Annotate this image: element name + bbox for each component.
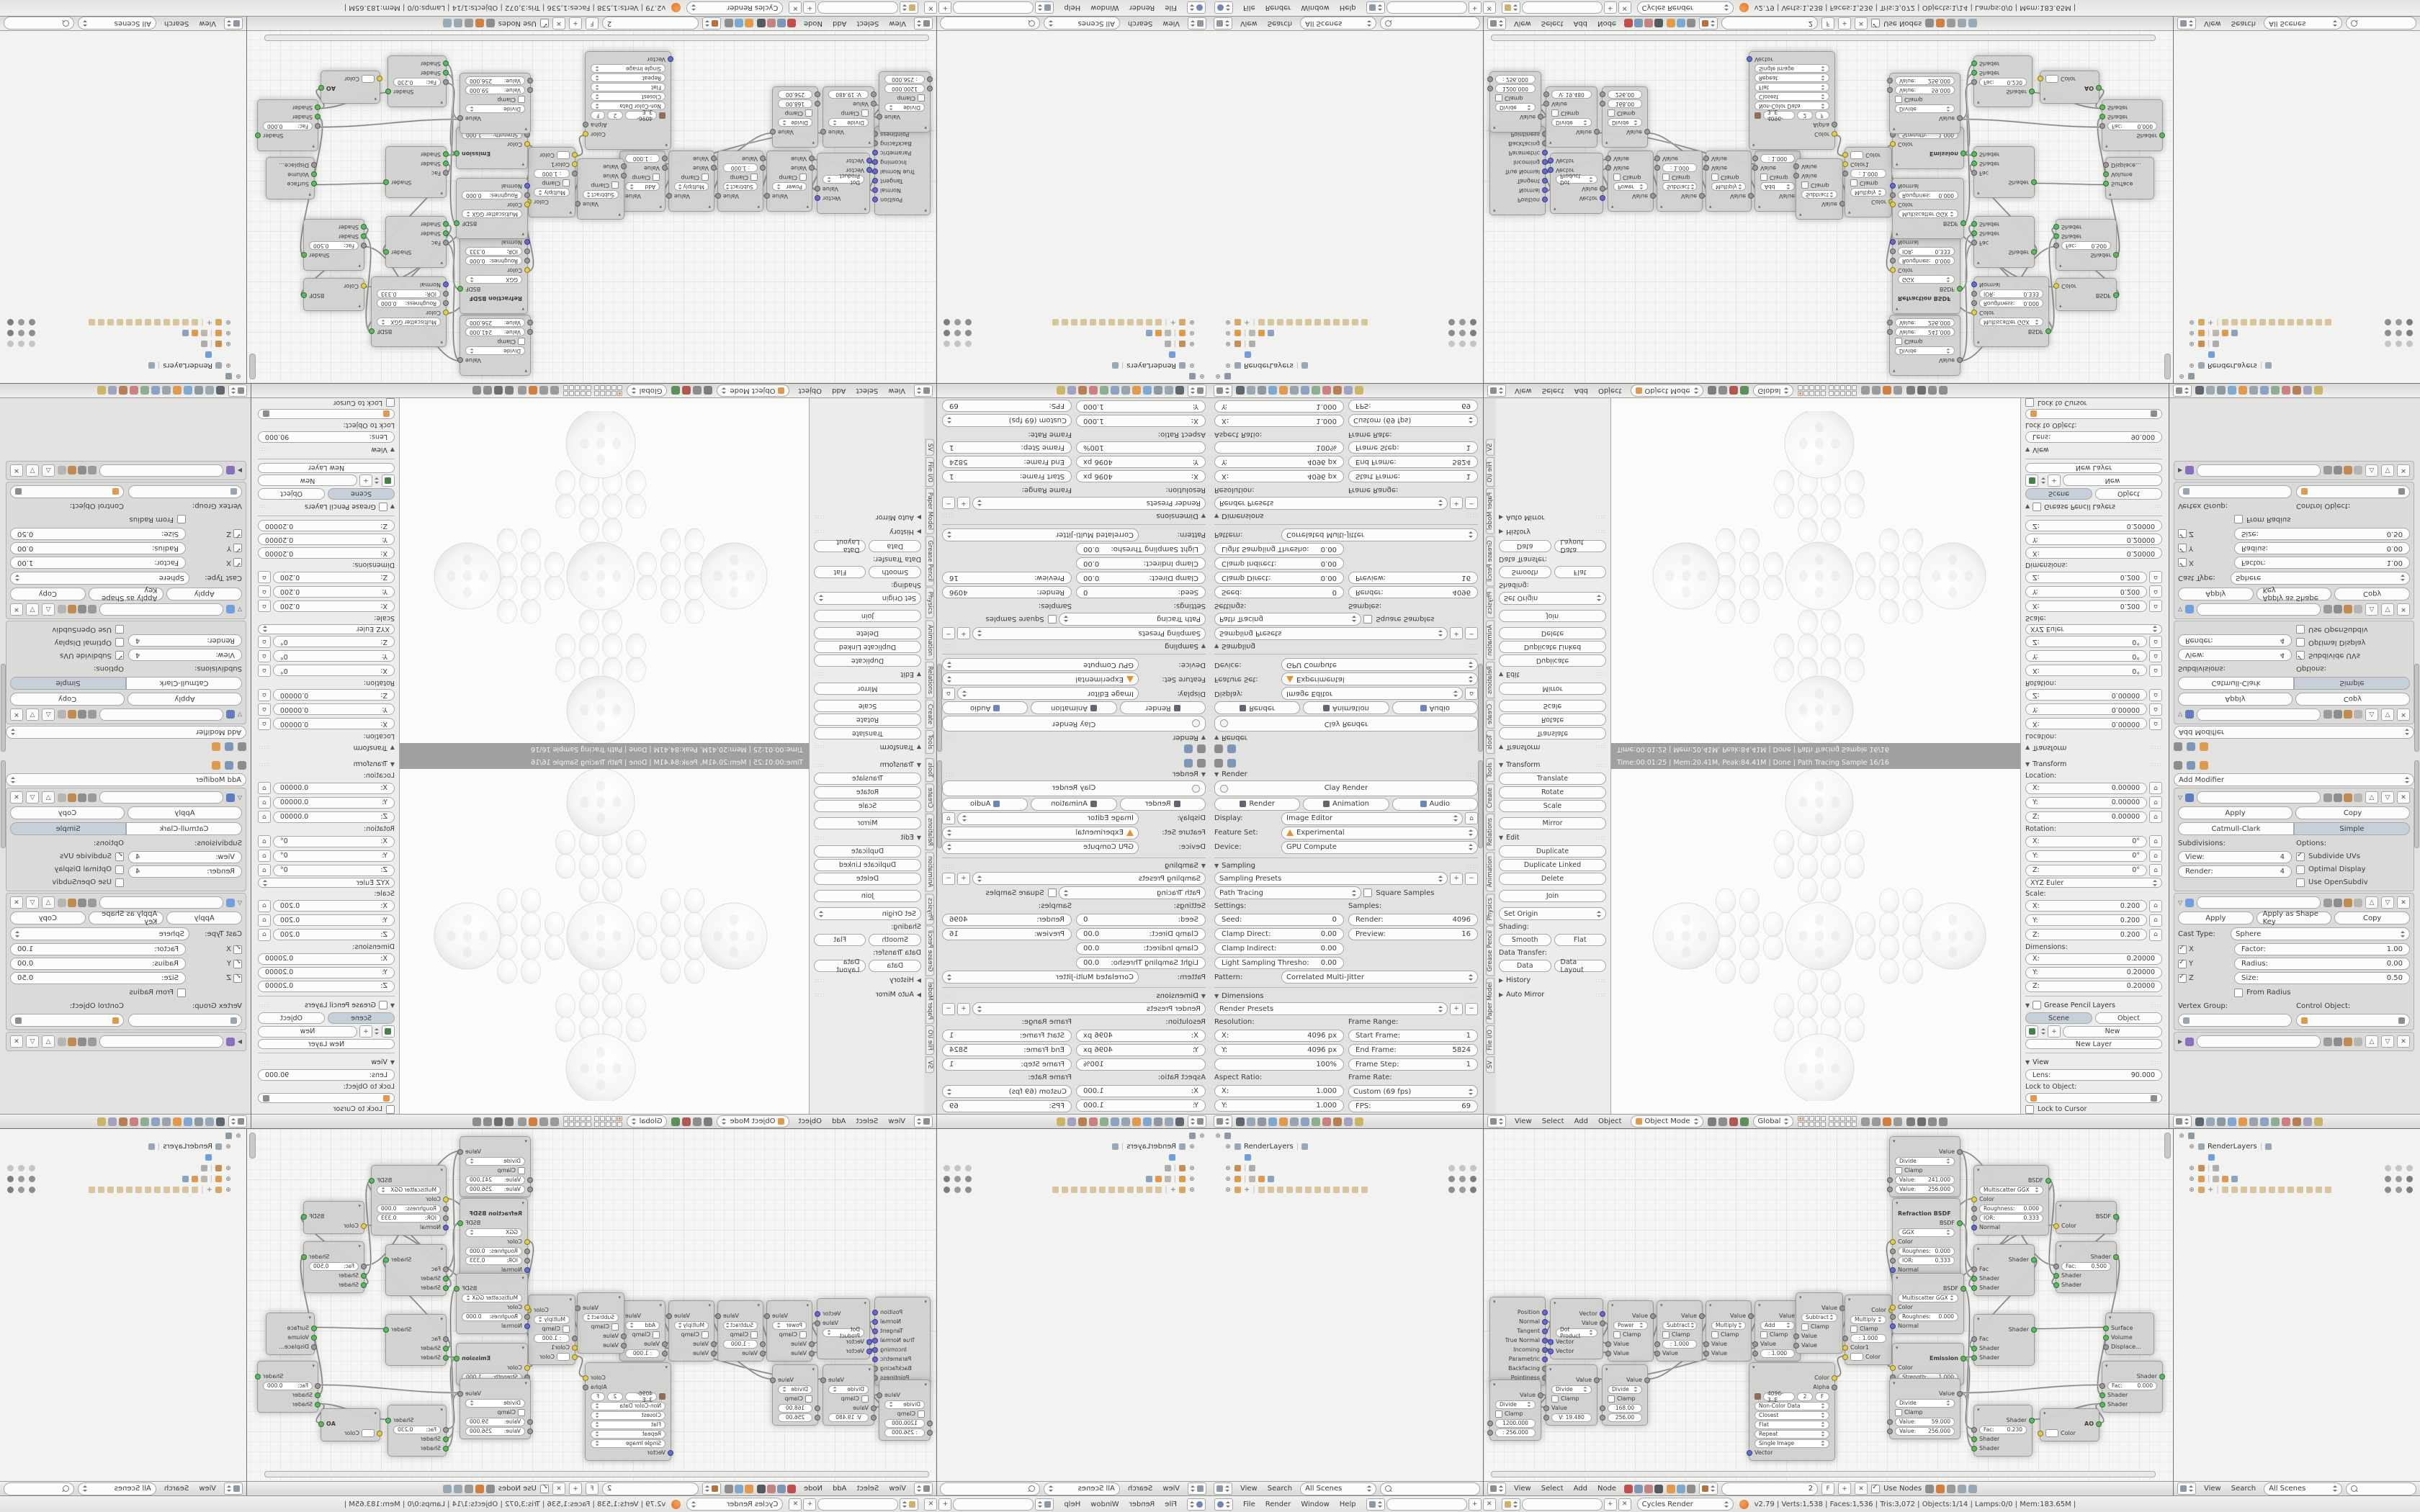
outliner-row[interactable]: ⊕| (938, 328, 1209, 338)
node-refr[interactable]: ▾Refraction BSDFBSDFGGXColorRoughnes:0.0… (1892, 1198, 1960, 1278)
node-socket[interactable] (318, 1421, 324, 1427)
mod-cage-icon[interactable] (58, 899, 66, 907)
node-socket[interactable] (2103, 181, 2109, 187)
copy-button[interactable]: Copy (2295, 693, 2410, 706)
mod-eye-icon[interactable] (78, 711, 86, 719)
node-dropdown[interactable]: Divide (884, 104, 925, 112)
node-socket[interactable] (770, 130, 776, 135)
object-data-icon[interactable] (1100, 387, 1108, 395)
node-value-field[interactable]: Value:256.000 (465, 1185, 525, 1194)
node-dropdown[interactable]: Divide (828, 1385, 869, 1394)
render-engine-dropdown[interactable]: Cycles Render (1637, 1498, 1734, 1511)
node-dropdown[interactable]: Multiply (674, 1321, 709, 1330)
layer-toggle[interactable] (1815, 385, 1820, 390)
lock-to-cursor-checkbox[interactable]: Lock to Cursor (258, 1104, 395, 1114)
scene-icon[interactable] (2217, 387, 2226, 395)
collapse-icon[interactable]: ▶ (238, 467, 242, 474)
add-icon[interactable]: + (2048, 474, 2061, 487)
delete-modifier-button[interactable]: ✕ (2397, 791, 2410, 804)
node-socket[interactable] (527, 1177, 533, 1183)
frame-rate-dropdown[interactable]: Custom (69 fps) (942, 1085, 1072, 1098)
layer-toggle[interactable] (563, 385, 568, 390)
lock-icon[interactable]: ⌂ (2149, 864, 2162, 876)
layer-toggle[interactable] (1803, 1116, 1809, 1121)
clay-render-button[interactable]: Clay Render (1214, 716, 1478, 732)
scene-lock-icon[interactable] (1861, 1117, 1870, 1126)
mod-editmode-icon[interactable] (68, 1038, 76, 1046)
frame-rate-dropdown[interactable]: Custom (69 fps) (1348, 1085, 1478, 1098)
optimal-display-checkbox[interactable]: Optimal Display (2296, 637, 2410, 648)
eye-off-toggle-icon[interactable] (29, 1165, 35, 1171)
node-socket[interactable] (1890, 1323, 1896, 1329)
node-dropdown[interactable]: Subtract (723, 1321, 758, 1330)
node-value-field[interactable]: : 256.000 (1495, 1428, 1536, 1437)
outliner-row[interactable]: ⊕RenderLayers| (2175, 360, 2419, 371)
sampling-presets-dropdown[interactable]: Sampling Presets (1214, 627, 1448, 640)
square-samples-checkbox[interactable]: Square Samples (942, 613, 1057, 624)
layer-toggle[interactable] (1821, 385, 1826, 390)
shelf-tab-create[interactable]: Create (926, 783, 935, 812)
from-radius-checkbox[interactable]: From Radius (10, 987, 186, 998)
number-field[interactable]: View:4 (128, 851, 242, 863)
collapse-icon[interactable]: ▽ (2178, 711, 2182, 718)
cursor-off-toggle-icon[interactable] (1459, 1165, 1466, 1171)
scrollbar[interactable] (1, 664, 6, 752)
node-socket[interactable] (1971, 222, 1977, 228)
node-socket[interactable] (711, 156, 717, 162)
snap-magnet-icon[interactable] (475, 19, 484, 28)
node-socket[interactable] (815, 102, 820, 107)
node-socket[interactable] (815, 1320, 820, 1326)
object-icon[interactable] (173, 387, 181, 395)
node-dropdown[interactable]: Add (625, 183, 660, 192)
node-dropdown[interactable]: Multiply (1711, 183, 1746, 192)
node-value-field[interactable]: Value:256.000 (1895, 319, 1955, 328)
node-diff[interactable]: ▾BSDFColor (2056, 1201, 2117, 1234)
add-scene-button[interactable]: + (803, 2, 816, 14)
node-socket[interactable] (1890, 1258, 1896, 1264)
menu-view[interactable]: View (1514, 19, 1531, 27)
number-field[interactable]: X:0° (273, 836, 395, 847)
node-socket[interactable] (1960, 1286, 1966, 1292)
cursor-off-toggle-icon[interactable] (954, 1165, 961, 1171)
layer-toggle[interactable] (581, 1122, 586, 1127)
axis-y-checkbox[interactable] (2178, 544, 2187, 553)
catmull-clark-button[interactable]: Catmull-Clark (2178, 677, 2294, 690)
lock-icon[interactable]: ⌂ (258, 718, 271, 730)
modifiers-icon[interactable] (2260, 1117, 2269, 1126)
user-count[interactable]: 2 (1797, 1392, 1813, 1401)
node-socket[interactable] (385, 1418, 391, 1423)
node-socket[interactable] (820, 1377, 826, 1383)
clamp-checkbox[interactable] (1895, 1409, 1902, 1416)
data-layout-button[interactable]: Data Layout (1554, 540, 1607, 552)
clamp-checkbox[interactable] (750, 1331, 758, 1338)
shelf-tab-physics[interactable]: Physics (926, 588, 935, 618)
outliner-row[interactable]: ⊕+| (1211, 1184, 1482, 1195)
layer-toggle[interactable] (586, 391, 591, 396)
apply-button[interactable]: Apply (127, 693, 242, 706)
outliner-row[interactable]: ⊕| (938, 1174, 1209, 1184)
node-mixD[interactable]: ▾ShaderFac:0.230ShaderShader (387, 55, 447, 107)
subdivide-uvs-checkbox[interactable]: Subdivide UVs (2296, 851, 2410, 862)
quad-view-icon[interactable] (472, 387, 481, 395)
node-socket[interactable] (1890, 1239, 1896, 1245)
number-field[interactable]: View:4 (128, 649, 242, 661)
shader-nodes-icon[interactable] (787, 1485, 796, 1493)
object-icon[interactable] (2200, 742, 2208, 751)
node-socket[interactable] (1971, 1446, 1977, 1452)
lock-icon[interactable]: ⌂ (258, 914, 271, 927)
node-socket[interactable] (1890, 142, 1896, 148)
menu-add[interactable]: Add (833, 19, 846, 27)
pencil-icon[interactable] (382, 1025, 395, 1038)
frame-rate-dropdown[interactable]: Custom (69 fps) (942, 414, 1072, 427)
display-dropdown[interactable]: Image Editor (1281, 812, 1463, 825)
layer-toggle[interactable] (1798, 1122, 1803, 1127)
node-imgtex[interactable]: ▾ColorAlpha4096-3..E2FNon-Color DataClos… (585, 51, 671, 150)
camera-toggle-icon[interactable] (1470, 1187, 1476, 1193)
remove-preset-button[interactable]: − (1465, 873, 1478, 885)
lock-icon[interactable]: ⌂ (2149, 703, 2162, 716)
context-object-icon[interactable] (745, 1485, 753, 1493)
viewport-shading-icon[interactable] (1708, 387, 1716, 395)
node-socket[interactable] (311, 1335, 317, 1341)
node-socket[interactable] (457, 358, 463, 364)
clamp-checkbox[interactable] (1850, 180, 1857, 187)
add-preset-button[interactable]: + (1450, 1003, 1463, 1015)
gp-checkbox[interactable] (379, 503, 387, 511)
duplicate-button[interactable]: Duplicate (1499, 654, 1606, 667)
camera-toggle-icon[interactable] (7, 1176, 14, 1182)
node-socket[interactable] (1594, 1377, 1600, 1383)
node-value-field[interactable]: Roughnes:0.000 (1898, 1247, 1955, 1256)
number-field[interactable]: Clamp Direct:0.00 (1076, 928, 1206, 940)
node-socket[interactable] (1842, 171, 1848, 177)
node-value-field[interactable]: : 1.000 (1662, 164, 1697, 173)
layer-toggle[interactable] (1840, 391, 1845, 396)
scrollbar[interactable] (937, 760, 942, 848)
shelf-edit-title[interactable]: ▼Edit:::: (1499, 831, 1606, 844)
node-add[interactable]: ▾ValueAddClampValue: 1.000 (619, 1300, 665, 1362)
node-socket[interactable] (443, 61, 449, 67)
layer-toggle[interactable] (600, 385, 605, 390)
shader-nodes-icon[interactable] (1624, 1485, 1633, 1493)
node-socket[interactable] (760, 1341, 766, 1347)
node-socket[interactable] (385, 89, 391, 95)
simple-button[interactable]: Simple (2294, 822, 2410, 835)
manipulator-icon[interactable] (1729, 387, 1738, 395)
mode-dropdown[interactable]: Object Mode (1631, 1115, 1703, 1128)
shelf-tab-sv[interactable]: SV (1486, 439, 1494, 456)
node-socket[interactable] (662, 1341, 668, 1347)
vertical-scrollbar[interactable] (2164, 1133, 2171, 1158)
node-socket[interactable] (1890, 184, 1896, 189)
data-layout-button[interactable]: Data Layout (1554, 960, 1607, 972)
scene-lock-icon[interactable] (550, 1117, 559, 1126)
copy-button[interactable]: Copy (10, 588, 86, 600)
apply-button[interactable]: Apply (166, 912, 242, 924)
subdivide-uvs-checkbox[interactable]: Subdivide UVs (2296, 650, 2410, 661)
data-button[interactable]: Data (869, 960, 922, 972)
scale-button[interactable]: Scale (1499, 700, 1606, 712)
flat-button[interactable]: Flat (814, 934, 866, 946)
node-dropdown[interactable]: Divide (1895, 105, 1955, 114)
object-data-icon[interactable] (2271, 387, 2280, 395)
node-socket[interactable] (311, 181, 317, 187)
camera-off-toggle-icon[interactable] (7, 1165, 14, 1171)
eye-toggle-icon[interactable] (29, 1187, 35, 1193)
node-socket[interactable] (1832, 132, 1837, 138)
node-dropdown[interactable]: Power (772, 1321, 807, 1330)
mod-eye-icon[interactable] (2334, 793, 2342, 802)
number-field[interactable]: Y:4096 px (1214, 1044, 1344, 1056)
layers-widget[interactable] (1798, 385, 1857, 396)
node-socket[interactable] (1890, 240, 1896, 246)
menu-file[interactable]: File (1243, 4, 1255, 12)
clamp-checkbox[interactable] (1760, 174, 1767, 181)
node-socket[interactable] (443, 301, 449, 307)
fake-user-button[interactable]: F (1815, 1392, 1829, 1401)
clamp-checkbox[interactable] (1711, 1331, 1718, 1338)
node-socket[interactable] (2053, 1282, 2059, 1288)
node-socket[interactable] (1548, 1349, 1554, 1354)
node-socket[interactable] (666, 1313, 672, 1319)
layers-widget[interactable] (1798, 1116, 1857, 1127)
outliner-scope-dropdown[interactable]: All Scenes (1044, 1482, 1120, 1495)
layer-toggle[interactable] (1809, 391, 1814, 396)
node-socket[interactable] (301, 1254, 307, 1260)
layer-toggle[interactable] (1834, 391, 1839, 396)
screen-name-field[interactable] (1386, 2, 1467, 14)
node-socket[interactable] (1542, 1356, 1548, 1362)
node-socket[interactable] (583, 132, 588, 138)
add-preset-button[interactable]: + (957, 498, 970, 510)
node-mixrgb[interactable]: ▾ColorMultiplyClamp: 1.000Color1Color (1845, 147, 1892, 217)
use-nodes-checkbox[interactable]: Use Nodes (1871, 18, 1922, 29)
scene-selector-icon[interactable] (900, 2, 918, 14)
layer-toggle[interactable] (575, 391, 580, 396)
axis-y-checkbox[interactable] (233, 544, 242, 553)
outliner-row[interactable]: ⊕RenderLayers| (1, 1141, 245, 1152)
node-socket[interactable] (443, 1436, 449, 1442)
outliner-search-field[interactable] (940, 1482, 1040, 1495)
eye-toggle-icon[interactable] (1448, 1187, 1455, 1193)
clamp-checkbox[interactable] (518, 1409, 525, 1416)
lock-icon[interactable]: ⌂ (258, 571, 271, 583)
move-up-button[interactable]: △ (2365, 1035, 2378, 1048)
number-field[interactable]: Lens:90.000 (258, 431, 395, 443)
node-socket[interactable] (457, 116, 463, 122)
render-layers-icon[interactable] (443, 19, 452, 28)
node-socket[interactable] (524, 258, 530, 264)
shelf-automirror-title[interactable]: ▶Auto Mirror:::: (814, 511, 921, 524)
node-socket[interactable] (1600, 196, 1605, 202)
outliner-row[interactable]: ⊕| (1211, 328, 1482, 338)
outliner-scope-dropdown[interactable]: All Scenes (78, 17, 156, 30)
layer-toggle[interactable] (1840, 1116, 1845, 1121)
node-socket[interactable] (871, 1415, 877, 1421)
node-value-field[interactable]: : 1.000 (534, 170, 570, 179)
clamp-checkbox[interactable] (799, 1331, 807, 1338)
node-geo[interactable]: ▾PositionNormalTangentTrue NormalIncomin… (1489, 126, 1546, 215)
clamp-checkbox[interactable] (799, 174, 807, 181)
subdivide-uvs-checkbox[interactable]: Subdivide UVs (10, 851, 124, 862)
delete-modifier-button[interactable]: ✕ (10, 708, 23, 721)
mod-render-icon[interactable] (88, 606, 97, 614)
scrollbar[interactable] (1478, 760, 1483, 848)
particles-icon[interactable] (108, 1117, 117, 1126)
node-socket[interactable] (318, 86, 324, 91)
node-socket[interactable] (443, 231, 449, 237)
number-field[interactable]: FPS:69 (1348, 400, 1478, 412)
node-socket[interactable] (1793, 164, 1799, 170)
node-socket[interactable] (524, 240, 530, 246)
clamp-checkbox[interactable] (702, 1331, 709, 1338)
new-material-button[interactable]: + (569, 1482, 582, 1495)
number-field[interactable]: Z:0.20000 (2025, 981, 2162, 992)
axis-y-checkbox[interactable] (2178, 960, 2187, 968)
number-field[interactable]: Preview:16 (1348, 572, 1478, 584)
node-glossy[interactable]: ▾BSDFMultiscatter GGXColorRoughnes:0.000… (1892, 178, 1964, 239)
outliner-row[interactable]: ⊕+| (1, 317, 245, 328)
data-button[interactable]: Data (869, 540, 922, 552)
np-gp-title[interactable]: ▼Grease Pencil Layers:::: (258, 501, 395, 512)
node-mixE[interactable]: ▾ShaderFac:0.000ShaderShader (2102, 1361, 2163, 1413)
mode-dropdown[interactable]: Object Mode (717, 384, 789, 397)
number-field[interactable]: X:0.20000 (258, 953, 395, 965)
clamp-checkbox[interactable] (518, 338, 525, 346)
sampling-presets-dropdown[interactable]: Sampling Presets (972, 872, 1206, 885)
np-transform-title[interactable]: ▼Transform:::: (258, 759, 395, 770)
number-field[interactable]: X:0.00000 (273, 718, 395, 729)
camera-toggle-icon[interactable] (2406, 319, 2413, 325)
scene-icon[interactable] (194, 387, 203, 395)
menu-view[interactable]: View (888, 387, 905, 395)
opengl-render-still-icon[interactable] (505, 1117, 514, 1126)
pencil-icon[interactable] (382, 474, 395, 487)
clamp-checkbox[interactable] (1895, 338, 1902, 346)
node-mixB[interactable]: ▾ShaderFac:0.500ShaderShader (2056, 219, 2117, 271)
compositing-nodes-icon[interactable] (777, 19, 786, 28)
node-d168[interactable]: ▾ValueDivideClamp168.00256.00 (772, 1364, 818, 1426)
cursor-toggle-icon[interactable] (18, 1176, 24, 1182)
node-dropdown[interactable]: Power (1613, 1321, 1648, 1330)
node-value-field[interactable]: Value:256.000 (1895, 77, 1955, 86)
cursor-off-toggle-icon[interactable] (2396, 1165, 2402, 1171)
lock-icon[interactable]: ⌂ (2149, 585, 2162, 598)
gp-scene-button[interactable]: Scene (328, 1012, 395, 1024)
menu-node[interactable]: Node (1597, 19, 1616, 27)
mirror-button[interactable]: Mirror (1499, 817, 1606, 829)
eye-toggle-icon[interactable] (1448, 1176, 1455, 1182)
node-socket[interactable] (524, 1314, 530, 1320)
snap-magnet-icon[interactable] (1936, 19, 1945, 28)
add-icon[interactable]: + (359, 1025, 372, 1038)
pattern-dropdown[interactable]: Correlated Multi-Jitter (1281, 971, 1478, 984)
move-up-button[interactable]: △ (2365, 791, 2378, 804)
node-socket[interactable] (2099, 105, 2105, 111)
scene-selector-icon[interactable] (1502, 2, 1520, 14)
material-icon[interactable] (130, 1117, 138, 1126)
node-glass[interactable]: ▾BSDFMultiscatter GGXColorRoughness:0.00… (1973, 1165, 2049, 1236)
scale-button[interactable]: Scale (814, 800, 921, 812)
node-value-field[interactable]: 1200.000 (884, 85, 925, 94)
eye-toggle-icon[interactable] (29, 319, 35, 325)
node-dropdown[interactable]: Closest (591, 1411, 665, 1420)
node-value-field[interactable]: Roughnes:0.000 (1898, 257, 1955, 266)
shelf-transform-title[interactable]: ▼Transform:::: (1499, 758, 1606, 771)
delete-modifier-button[interactable]: ✕ (2397, 896, 2410, 909)
node-socket[interactable] (872, 1356, 878, 1362)
data-button[interactable]: Data (1499, 960, 1551, 972)
layer-toggle[interactable] (1852, 1116, 1857, 1121)
delete-modifier-button[interactable]: ✕ (10, 791, 23, 804)
node-socket[interactable] (361, 1273, 367, 1279)
unlink-button[interactable]: ✕ (1855, 1482, 1868, 1495)
clamp-checkbox[interactable] (518, 96, 525, 104)
node-diff[interactable]: ▾BSDFColor (303, 1201, 364, 1234)
menu-view[interactable]: View (889, 1485, 906, 1493)
editor-type-button[interactable] (1188, 384, 1206, 397)
outliner-row[interactable]: ⊕ (1211, 371, 1482, 382)
lock-icon[interactable]: ⌂ (258, 689, 271, 701)
outliner-row[interactable]: ⊕| (1, 328, 245, 338)
cast-field[interactable]: Factor:1.00 (2234, 557, 2410, 569)
layer-toggle[interactable] (581, 391, 586, 396)
node-mixrgb[interactable]: ▾ColorMultiplyClamp: 1.000Color1Color (1845, 1295, 1892, 1365)
node-value-field[interactable]: Fac:0.000 (2107, 1382, 2157, 1390)
node-socket[interactable] (872, 1347, 878, 1353)
pause-icon[interactable] (1928, 1117, 1937, 1126)
add-preset-button[interactable]: + (1450, 498, 1463, 510)
object-data-icon[interactable] (1312, 387, 1320, 395)
number-field[interactable]: Z:0.200 (2025, 929, 2147, 940)
node-socket[interactable] (1699, 1313, 1705, 1319)
opengl-render-anim-icon[interactable] (494, 1117, 503, 1126)
node-socket[interactable] (2029, 89, 2035, 95)
layer-toggle[interactable] (1821, 391, 1826, 396)
editor-type-button[interactable] (1188, 17, 1206, 30)
delete-screen-button[interactable]: ✕ (1483, 1498, 1496, 1511)
node-socket[interactable] (1703, 156, 1709, 162)
modifier-name-field[interactable] (2197, 1035, 2321, 1048)
render-layers-icon[interactable] (2206, 387, 2215, 395)
node-socket[interactable] (583, 1385, 588, 1390)
outliner-row[interactable]: ⊕ (1211, 1130, 1482, 1141)
node-diff[interactable]: ▾BSDFColor (303, 278, 364, 311)
shelf-tab-create[interactable]: Create (926, 700, 935, 729)
snap-magnet-icon[interactable] (1936, 1485, 1945, 1493)
mod-render-icon[interactable] (88, 793, 97, 802)
node-canvas[interactable]: ▾PositionNormalTangentTrue NormalIncomin… (1484, 31, 2174, 383)
camera-off-toggle-icon[interactable] (1470, 341, 1476, 347)
eye-toggle-icon[interactable] (29, 1176, 35, 1182)
vertex-group-field[interactable] (128, 485, 242, 498)
snap-magnet-icon[interactable] (475, 1485, 484, 1493)
node-dropdown[interactable]: Flat (1754, 84, 1829, 92)
mod-cage-icon[interactable] (2354, 793, 2362, 802)
layer-toggle[interactable] (1829, 1122, 1834, 1127)
constraints-icon[interactable] (2249, 1117, 2258, 1126)
node-socket[interactable] (575, 1305, 581, 1311)
node-socket[interactable] (1752, 156, 1758, 162)
scrollbar[interactable] (1478, 664, 1483, 752)
mod-render-icon[interactable] (88, 1038, 97, 1046)
node-socket[interactable] (1887, 1419, 1893, 1425)
node-d168[interactable]: ▾ValueDivideClamp168.00256.00 (1602, 1364, 1648, 1426)
node-value-field[interactable]: Value:59.000 (1895, 86, 1955, 95)
